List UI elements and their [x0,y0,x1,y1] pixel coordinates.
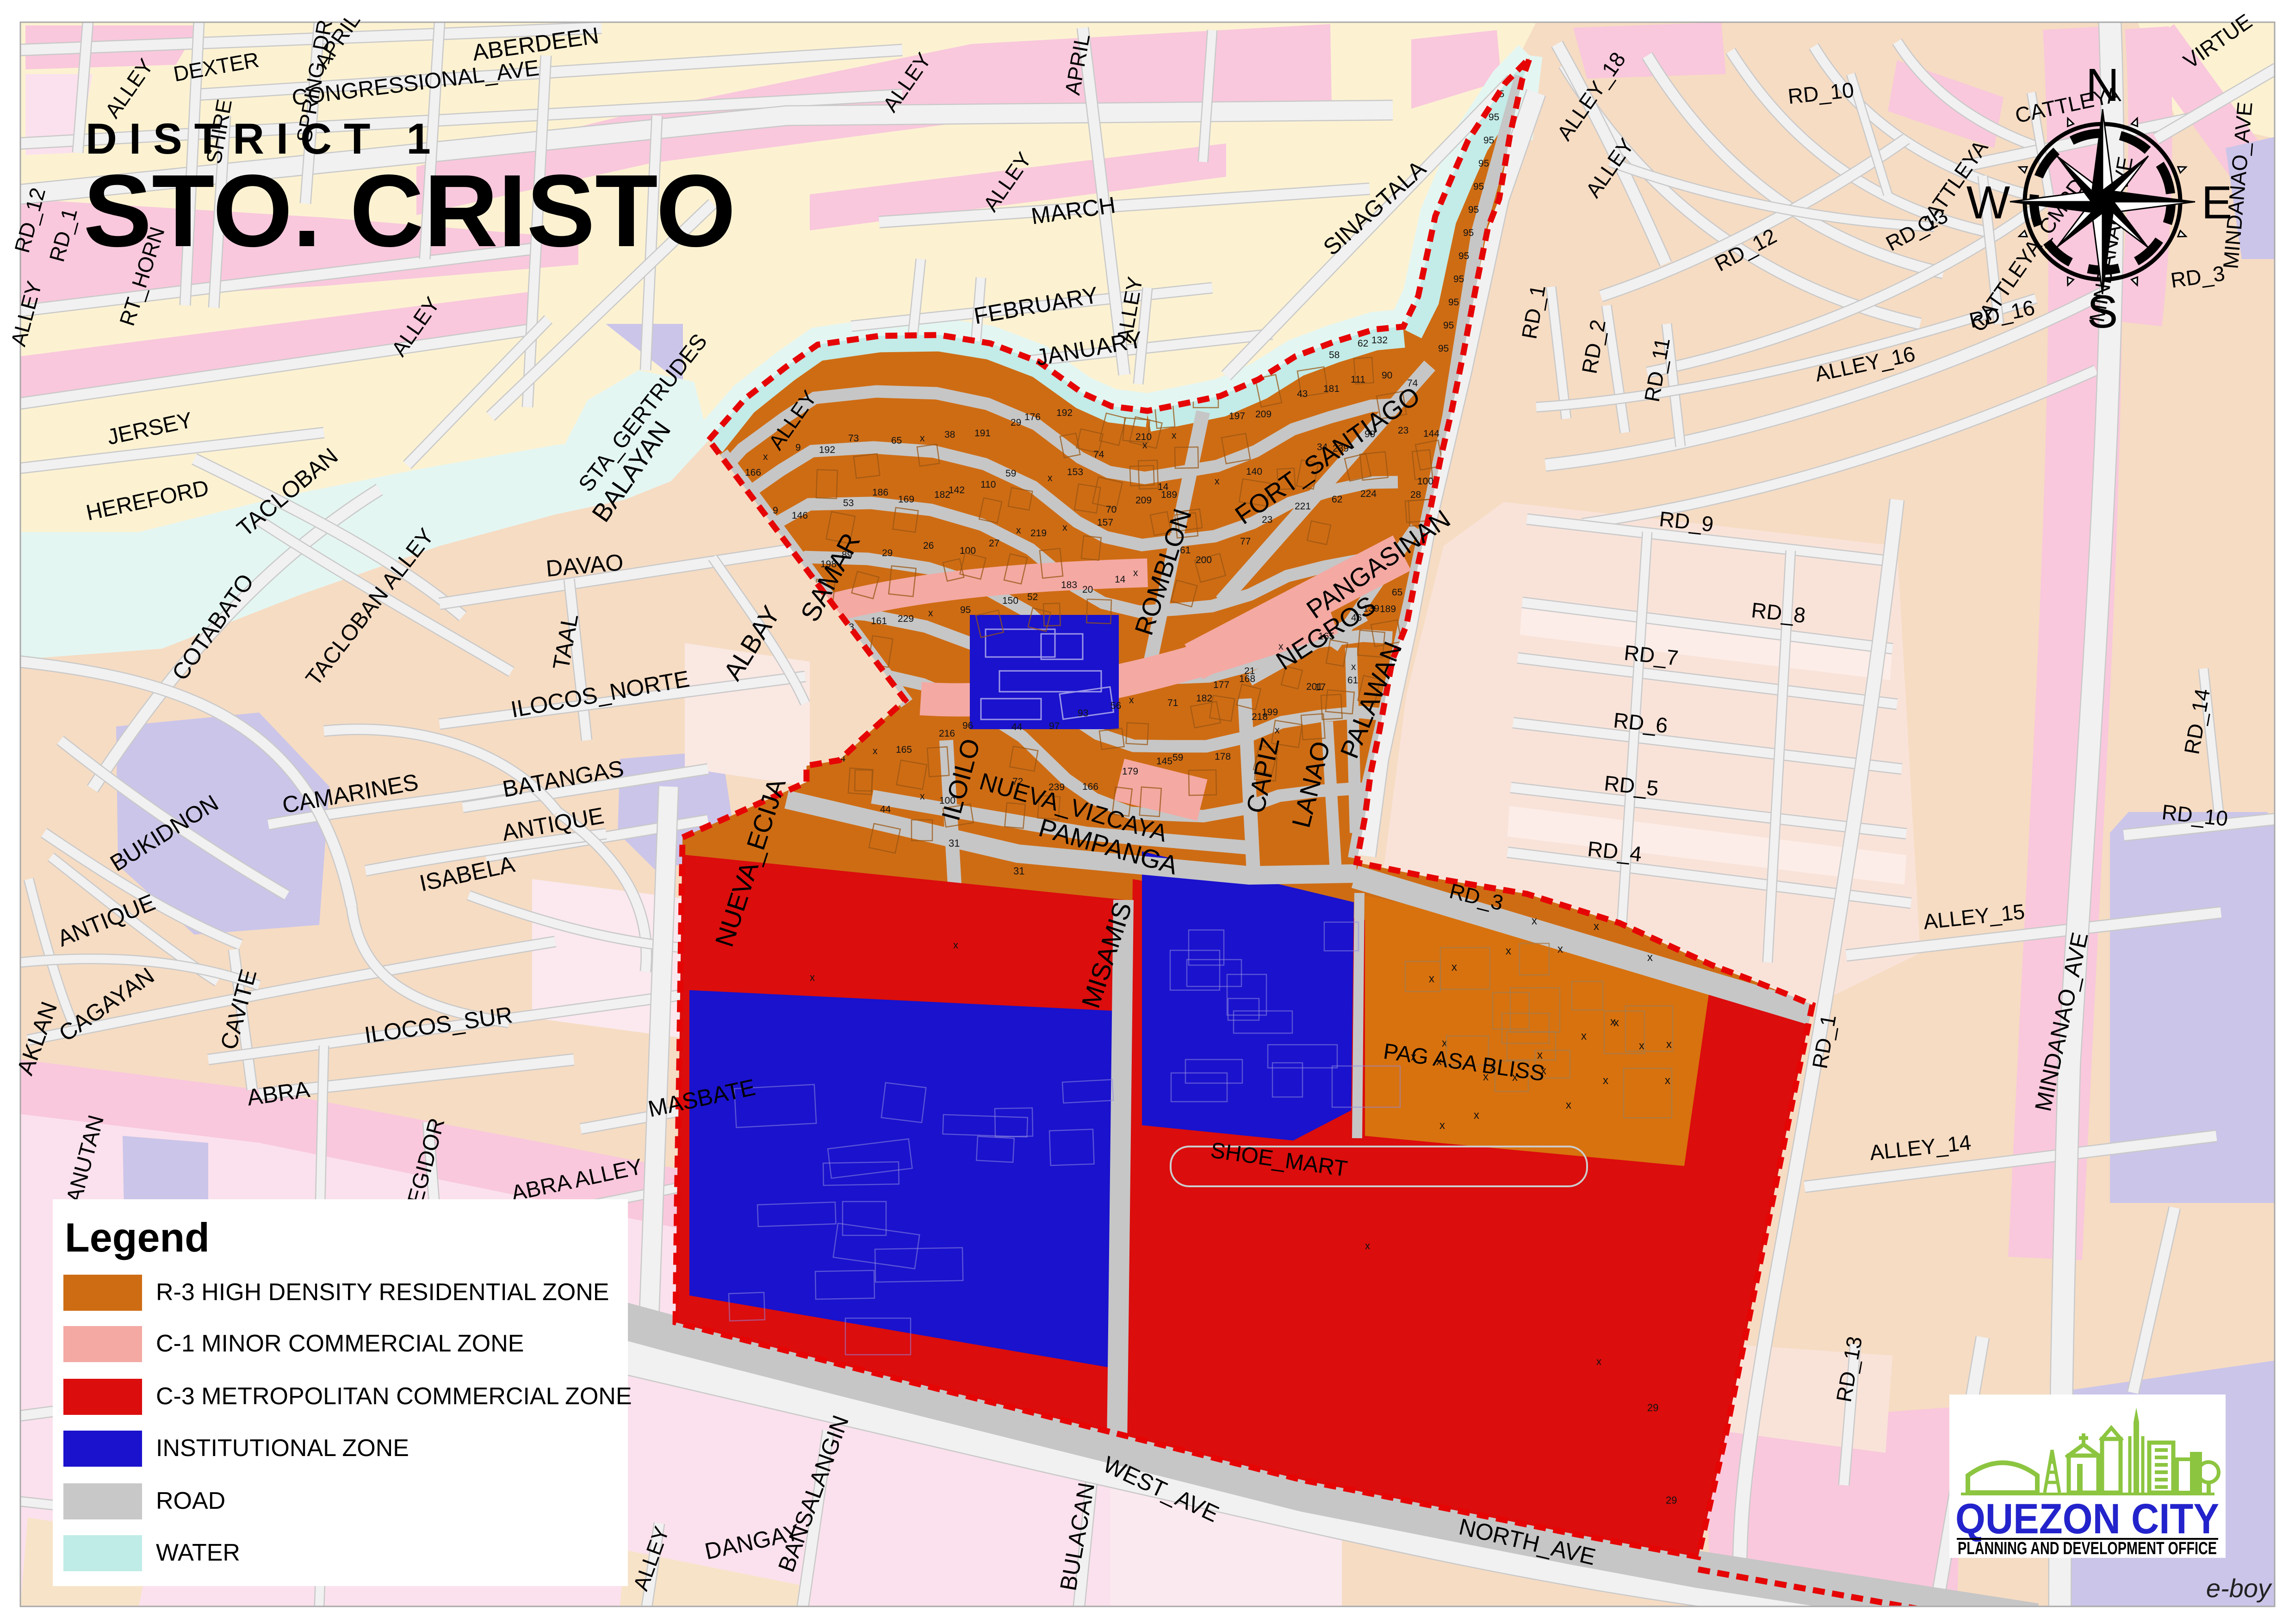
svg-text:x: x [1566,1099,1571,1111]
svg-text:209: 209 [1135,495,1152,506]
svg-text:73: 73 [848,433,859,444]
svg-text:23: 23 [1398,425,1408,436]
svg-text:182: 182 [934,490,950,500]
svg-text:181: 181 [1323,384,1340,394]
svg-text:111: 111 [1351,374,1365,385]
svg-text:x: x [928,608,933,619]
svg-text:95: 95 [1448,297,1459,308]
svg-text:100: 100 [1417,476,1433,487]
svg-text:x: x [1557,943,1563,955]
svg-text:S: S [2087,286,2118,338]
svg-text:C-3 METROPOLITAN COMMERCIAL ZO: C-3 METROPOLITAN COMMERCIAL ZONE [156,1383,632,1410]
svg-text:x: x [1474,1109,1479,1122]
svg-text:29: 29 [1666,1494,1677,1506]
svg-text:x: x [1647,951,1653,964]
svg-text:x: x [1665,1074,1670,1087]
svg-text:x: x [1365,1240,1370,1252]
svg-text:31: 31 [1013,865,1024,877]
svg-text:21: 21 [1244,666,1255,676]
svg-text:70: 70 [1106,504,1116,515]
svg-text:Legend: Legend [65,1215,210,1260]
svg-text:x: x [1603,1074,1608,1087]
svg-text:x: x [1048,473,1053,483]
svg-text:56: 56 [1110,700,1121,711]
svg-text:x: x [1172,430,1177,441]
svg-text:52: 52 [1027,592,1038,602]
svg-text:209: 209 [1255,409,1272,420]
svg-text:x: x [1594,920,1599,933]
svg-text:62: 62 [1358,338,1368,349]
svg-text:199: 199 [1262,707,1278,718]
svg-text:x: x [1666,1038,1672,1051]
svg-text:95: 95 [1443,320,1454,331]
svg-text:95: 95 [1438,343,1449,354]
svg-text:95: 95 [1468,205,1479,215]
svg-text:150: 150 [1002,595,1018,606]
svg-text:97: 97 [1049,721,1060,731]
svg-text:x: x [1016,525,1021,536]
svg-text:x: x [1439,1119,1445,1132]
svg-text:77: 77 [1240,536,1251,547]
svg-text:166: 166 [1082,781,1098,792]
svg-text:44: 44 [1011,722,1023,732]
svg-text:20: 20 [1082,584,1093,595]
svg-text:65: 65 [1392,587,1402,598]
svg-text:169: 169 [898,494,914,505]
svg-text:x: x [873,746,878,756]
svg-text:95: 95 [960,605,971,615]
svg-text:178: 178 [1215,751,1231,762]
svg-text:N: N [2086,59,2119,111]
svg-text:71: 71 [1167,698,1178,708]
svg-text:140: 140 [1246,466,1262,477]
svg-text:65: 65 [891,435,902,446]
svg-text:191: 191 [974,428,991,439]
svg-text:182: 182 [1196,693,1212,704]
svg-text:R-3 HIGH DENSITY RESIDENTIAL Z: R-3 HIGH DENSITY RESIDENTIAL ZONE [156,1279,609,1306]
svg-text:WATER: WATER [156,1539,240,1566]
svg-text:153: 153 [1067,467,1083,477]
svg-text:189: 189 [1380,604,1396,614]
svg-text:157: 157 [1097,517,1113,528]
svg-text:166: 166 [745,467,761,478]
svg-text:29: 29 [1647,1402,1658,1413]
svg-text:59: 59 [1172,752,1183,763]
svg-text:186: 186 [872,487,888,498]
svg-text:x: x [1610,1016,1616,1028]
svg-text:177: 177 [1213,680,1229,690]
svg-text:95: 95 [1463,228,1474,238]
svg-text:9: 9 [773,505,778,516]
svg-text:192: 192 [819,445,835,455]
svg-text:28: 28 [1410,490,1421,500]
svg-text:x: x [1129,695,1134,706]
svg-text:144: 144 [1423,428,1439,439]
svg-text:90: 90 [1382,370,1392,381]
svg-text:W: W [1966,177,2010,229]
svg-text:179: 179 [1122,766,1138,777]
svg-text:x: x [920,791,925,802]
svg-text:x: x [1532,915,1537,927]
svg-text:9: 9 [795,442,801,453]
svg-text:59: 59 [1005,468,1016,479]
svg-text:183: 183 [1061,580,1077,590]
svg-text:x: x [1142,440,1147,451]
svg-text:x: x [810,972,815,983]
svg-text:44: 44 [880,804,891,815]
svg-text:QUEZON CITY: QUEZON CITY [1955,1495,2219,1543]
svg-text:x: x [1506,945,1511,957]
svg-text:29: 29 [882,548,893,558]
svg-text:189: 189 [1161,490,1177,500]
svg-text:14: 14 [1115,574,1126,585]
svg-text:x: x [1639,1040,1644,1052]
svg-text:26: 26 [923,540,934,551]
svg-text:61: 61 [1347,675,1358,686]
svg-text:x: x [953,939,958,951]
svg-text:229: 229 [898,614,914,624]
svg-text:PLANNING AND DEVELOPMENT OFFIC: PLANNING AND DEVELOPMENT OFFICE [1958,1539,2217,1558]
svg-text:95: 95 [1473,181,1484,192]
svg-text:INSTITUTIONAL ZONE: INSTITUTIONAL ZONE [156,1435,409,1462]
svg-text:197: 197 [1229,411,1245,421]
svg-text:38: 38 [944,429,955,440]
svg-text:110: 110 [980,479,996,490]
svg-text:146: 146 [792,510,808,521]
svg-text:95: 95 [1453,274,1464,285]
svg-text:x: x [920,433,925,444]
svg-text:x: x [1215,476,1220,487]
svg-text:161: 161 [871,616,887,626]
svg-text:62: 62 [1332,494,1342,505]
svg-text:x: x [1275,725,1280,736]
svg-text:224: 224 [1360,489,1377,499]
svg-text:31: 31 [949,837,960,849]
svg-text:95: 95 [1458,251,1469,261]
svg-text:96: 96 [962,720,973,731]
svg-text:93: 93 [1078,708,1088,719]
svg-text:165: 165 [896,744,912,755]
svg-text:E: E [2202,177,2233,229]
svg-text:x: x [1596,1356,1601,1367]
svg-text:95: 95 [1489,112,1499,123]
svg-text:192: 192 [1056,408,1073,418]
svg-text:221: 221 [1295,501,1311,512]
svg-text:142: 142 [949,485,965,496]
svg-text:ROAD: ROAD [156,1488,225,1514]
svg-text:43: 43 [1297,389,1308,399]
svg-text:29: 29 [1011,417,1021,428]
svg-text:x: x [1351,662,1356,672]
svg-text:27: 27 [989,538,999,549]
svg-text:95: 95 [1478,158,1489,169]
svg-text:58: 58 [1329,350,1340,360]
svg-text:x: x [1429,973,1434,985]
svg-text:x: x [763,452,768,462]
svg-text:e-boy: e-boy [2206,1574,2272,1603]
svg-text:STO. CRISTO: STO. CRISTO [83,154,736,268]
svg-text:x: x [1133,568,1138,578]
svg-text:95: 95 [1483,135,1494,146]
svg-text:17: 17 [1315,682,1326,693]
svg-text:216: 216 [939,728,955,739]
svg-text:x: x [1581,1030,1587,1042]
svg-text:53: 53 [843,498,854,508]
svg-text:176: 176 [1024,412,1041,422]
svg-text:200: 200 [1196,555,1212,565]
svg-text:132: 132 [1371,335,1388,346]
svg-text:74: 74 [1093,449,1104,460]
svg-text:145: 145 [1156,756,1172,767]
svg-text:219: 219 [1030,528,1047,539]
svg-text:x: x [1451,961,1457,973]
svg-text:C-1 MINOR COMMERCIAL ZONE: C-1 MINOR COMMERCIAL ZONE [156,1330,524,1357]
svg-text:x: x [1062,522,1067,533]
